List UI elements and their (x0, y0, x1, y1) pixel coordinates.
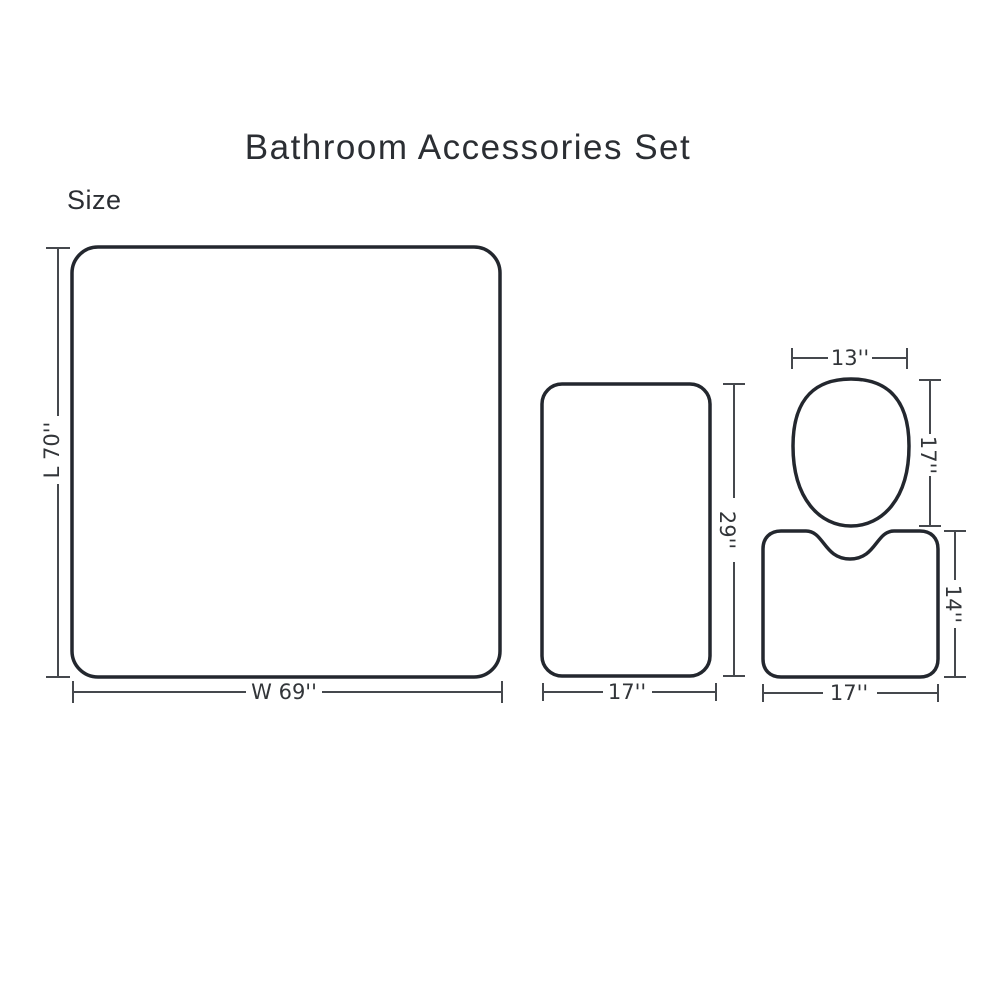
curtain-length-label: L 70'' (40, 422, 64, 479)
contour-mat-width-label: 17'' (830, 681, 868, 705)
lid-cover-height-label: 17'' (916, 436, 940, 474)
bath-mat-outline (542, 384, 710, 676)
shower-curtain-outline (72, 247, 500, 677)
lid-cover-width-label: 13'' (831, 346, 869, 370)
toilet-lid-cover-outline (793, 379, 909, 526)
bath-mat-height-label: 29'' (715, 511, 739, 549)
size-diagram (0, 0, 1000, 1000)
contour-mat-outline (763, 531, 938, 677)
curtain-width-label: W 69'' (251, 680, 317, 704)
bath-mat-width-label: 17'' (608, 680, 646, 704)
contour-mat-height-label: 14'' (941, 585, 965, 623)
